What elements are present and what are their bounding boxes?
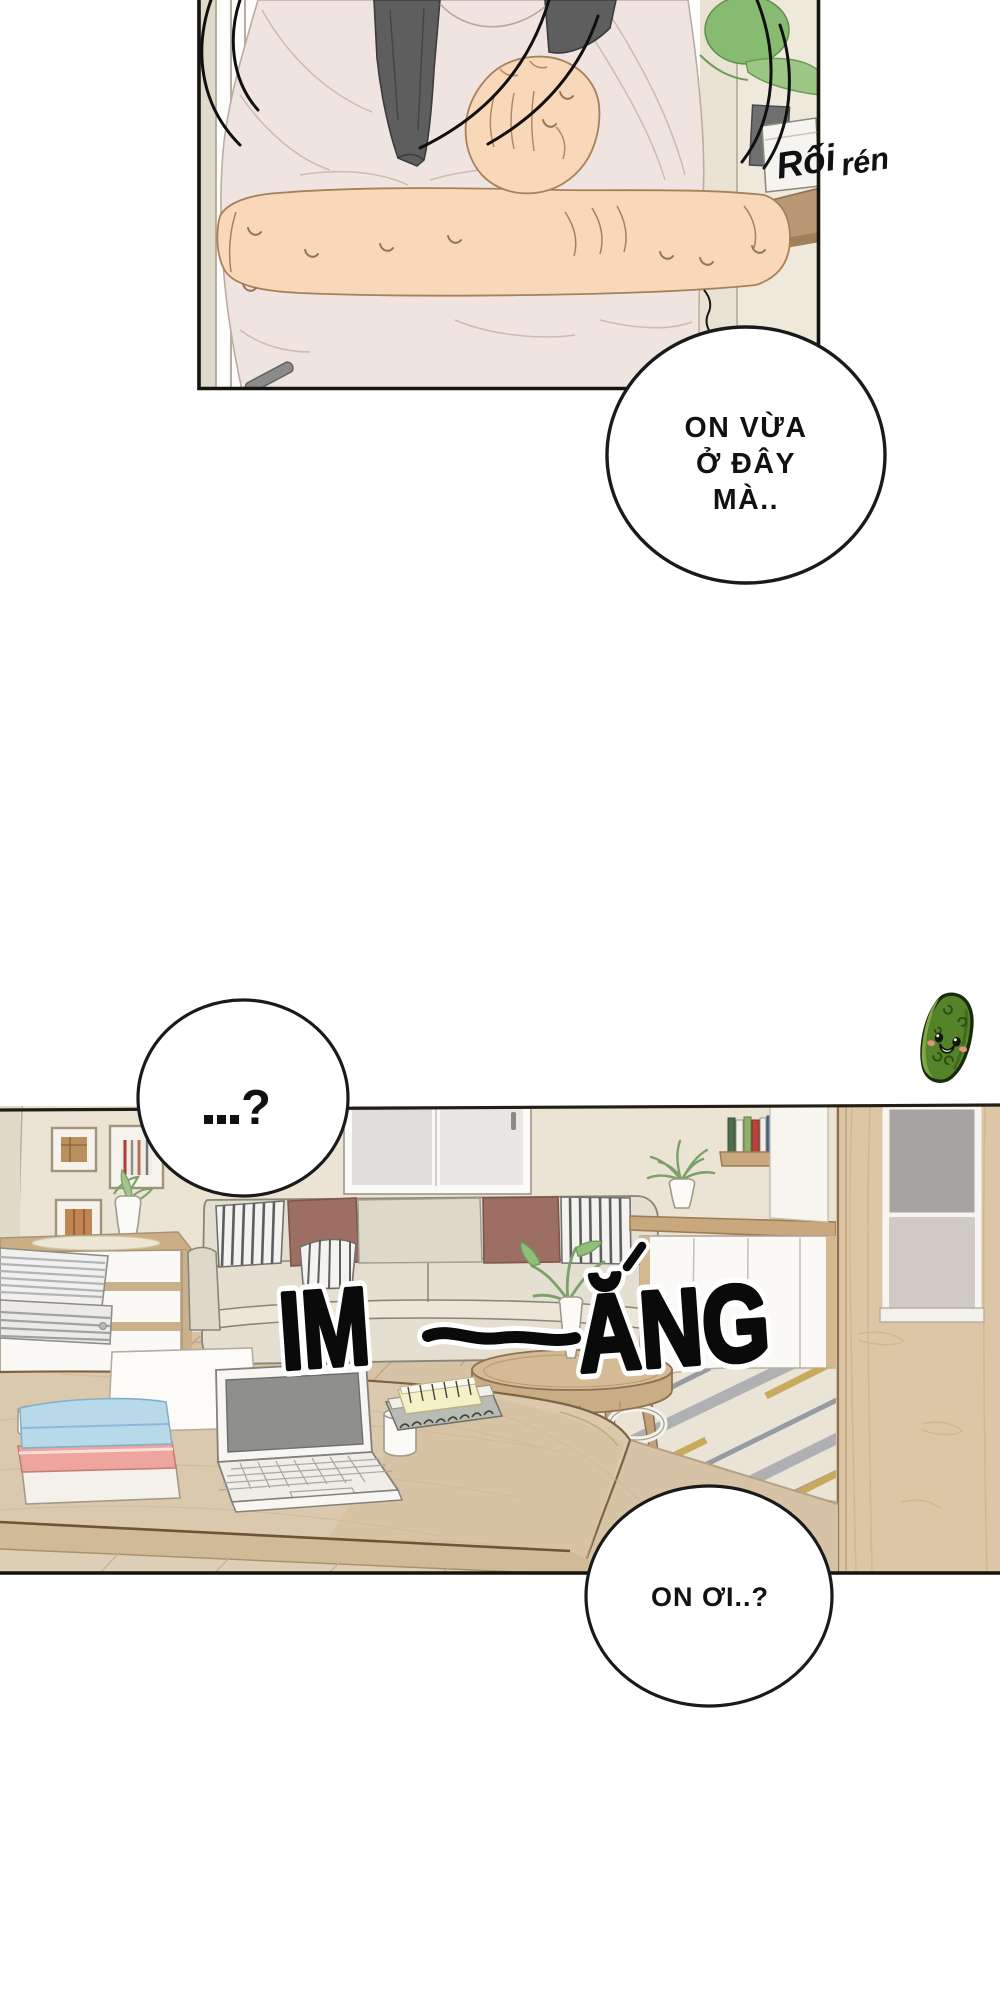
svg-text:ON ƠI..?: ON ƠI..? [651,1582,769,1612]
svg-text:MÀ..: MÀ.. [713,484,779,516]
svg-text:ĂNG: ĂNG [573,1260,773,1395]
svg-text:Ở ĐÂY: Ở ĐÂY [696,447,796,480]
svg-text:?: ? [241,1081,271,1135]
svg-text:rén: rén [838,140,891,182]
svg-text:IM: IM [275,1265,373,1393]
svg-text:ON VỪA: ON VỪA [685,412,808,444]
